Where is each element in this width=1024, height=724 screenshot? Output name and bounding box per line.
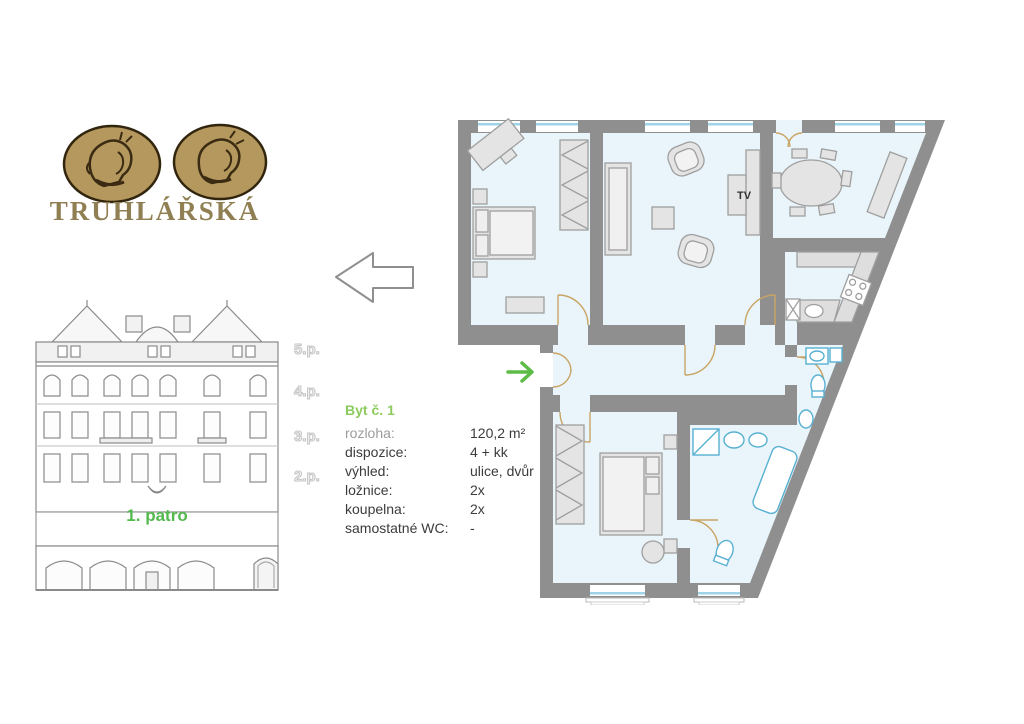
room-floors <box>471 133 926 583</box>
pillow <box>646 477 659 494</box>
sink-b <box>749 433 767 447</box>
tv-label: TV <box>737 190 752 202</box>
dresser <box>506 297 544 313</box>
mattress <box>603 457 644 531</box>
pouf <box>642 541 664 563</box>
chair <box>818 204 834 215</box>
chair <box>792 149 807 158</box>
left-arrow-icon <box>330 246 418 308</box>
chair <box>820 149 836 160</box>
chair <box>841 171 852 187</box>
chair <box>772 173 781 188</box>
logo-medallion-left <box>64 126 160 202</box>
chair <box>790 207 805 216</box>
kitchen-sink <box>805 305 823 318</box>
building-facade-drawing <box>28 300 286 598</box>
floor-label-4p: 4.p. <box>294 383 340 400</box>
floor-plan: TV <box>440 95 1024 605</box>
sink-a <box>724 432 744 448</box>
washer <box>830 348 842 362</box>
mattress <box>490 211 533 255</box>
toilet-seat <box>812 391 824 397</box>
entrance-arrow-icon <box>508 363 532 381</box>
logo-medallions <box>60 122 270 207</box>
pillow <box>646 457 659 474</box>
washbasin <box>810 351 824 361</box>
floor-label-2p: 2.p. <box>294 468 340 485</box>
floor-label-5p: 5.p. <box>294 341 340 358</box>
apartment-title: Byt č. 1 <box>345 402 395 418</box>
nightstand <box>664 539 677 553</box>
real-estate-sheet: TRUHLÁŘSKÁ <box>0 0 1024 724</box>
dining-table <box>780 160 842 206</box>
bidet <box>799 410 813 428</box>
brand-logo <box>60 122 270 207</box>
nightstand <box>473 262 487 277</box>
nightstand <box>664 435 677 449</box>
brand-name: TRUHLÁŘSKÁ <box>36 196 274 227</box>
floor-plan-svg: TV <box>440 95 1024 605</box>
facade-svg <box>28 300 286 598</box>
nightstand <box>473 189 487 204</box>
hallway-floor <box>553 345 785 395</box>
highlighted-floor-label: 1. patro <box>28 506 286 526</box>
logo-medallion-right <box>174 125 266 199</box>
pillow <box>476 210 488 232</box>
coffee-table <box>652 207 674 229</box>
floor-label-3p: 3.p. <box>294 428 340 445</box>
pillow <box>476 235 488 256</box>
